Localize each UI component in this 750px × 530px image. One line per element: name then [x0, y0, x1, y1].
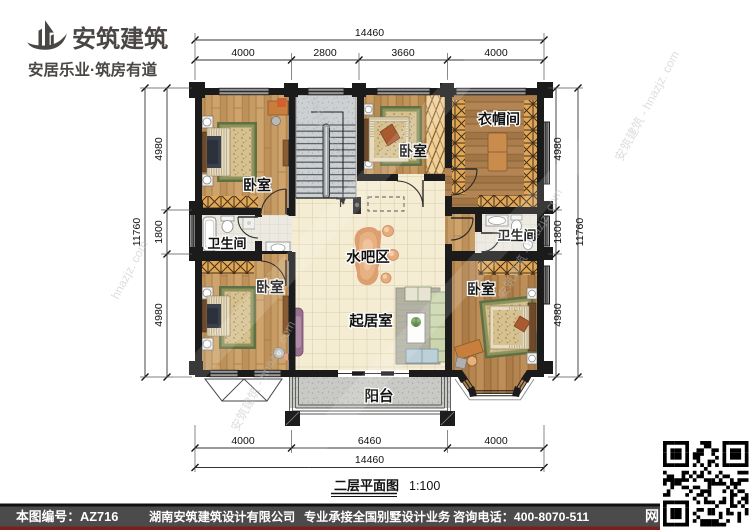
svg-text:咨询电话：400-8070-511: 咨询电话：400-8070-511 — [453, 509, 589, 524]
svg-text:本图编号：AZ716: 本图编号：AZ716 — [16, 509, 118, 524]
svg-text:专业承接全国别墅设计业务: 专业承接全国别墅设计业务 — [304, 509, 451, 524]
svg-text:4000: 4000 — [231, 47, 255, 59]
svg-text:1:100: 1:100 — [409, 479, 440, 493]
svg-text:衣帽间: 衣帽间 — [478, 111, 520, 127]
svg-text:4980: 4980 — [552, 303, 564, 327]
svg-text:1800: 1800 — [552, 220, 564, 244]
svg-text:湖南安筑建筑设计有限公司: 湖南安筑建筑设计有限公司 — [149, 509, 295, 524]
svg-text:卫生间: 卫生间 — [207, 236, 246, 251]
svg-text:14460: 14460 — [355, 454, 384, 466]
svg-text:起居室: 起居室 — [348, 312, 393, 330]
svg-text:3660: 3660 — [391, 47, 415, 59]
svg-text:14460: 14460 — [355, 27, 384, 39]
svg-text:4980: 4980 — [153, 137, 165, 161]
svg-text:水吧区: 水吧区 — [346, 248, 390, 266]
svg-text:6460: 6460 — [358, 435, 382, 447]
svg-text:4000: 4000 — [231, 435, 255, 447]
svg-text:安筑建筑: 安筑建筑 — [72, 25, 168, 53]
svg-text:4000: 4000 — [484, 435, 508, 447]
svg-text:2800: 2800 — [313, 47, 337, 59]
svg-text:4980: 4980 — [153, 303, 165, 327]
svg-text:二层平面图: 二层平面图 — [334, 478, 399, 493]
svg-text:4000: 4000 — [484, 47, 508, 59]
svg-text:网: 网 — [645, 508, 659, 524]
svg-text:安居乐业·筑房有道: 安居乐业·筑房有道 — [28, 60, 158, 79]
svg-text:1800: 1800 — [153, 220, 165, 244]
svg-text:11760: 11760 — [574, 218, 586, 247]
svg-text:卧室: 卧室 — [243, 177, 271, 193]
